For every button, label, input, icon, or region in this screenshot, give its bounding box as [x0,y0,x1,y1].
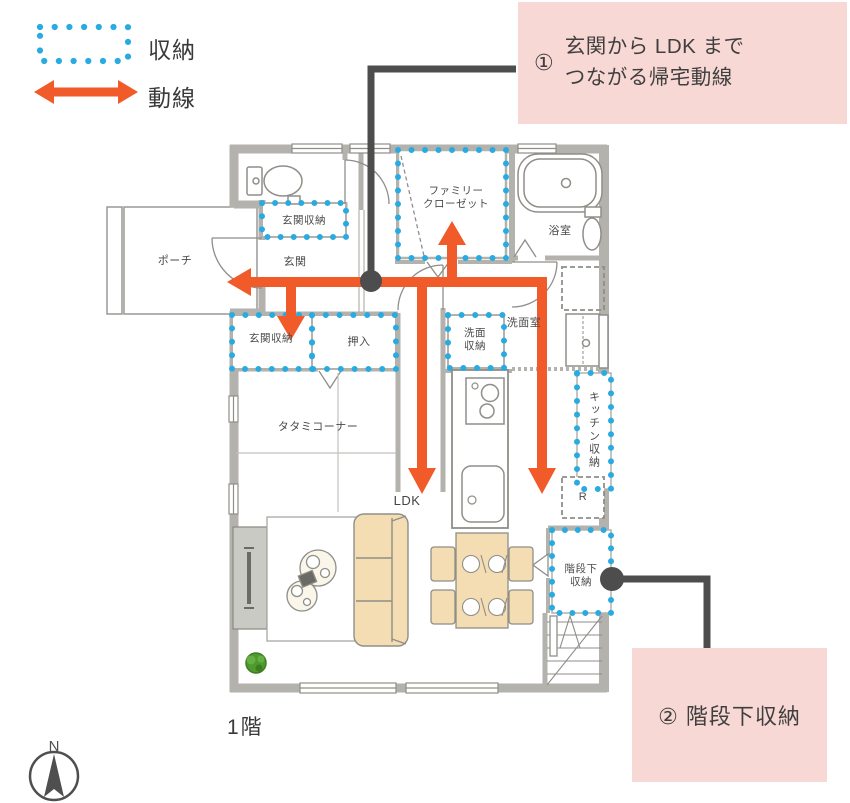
legend-storage-label: 収納 [148,31,196,65]
callout-return-flow: ① 玄関から LDK まで つながる帰宅動線 [518,2,847,124]
tatami-mat-lines [236,373,396,512]
callout-stairs-storage: ② 階段下収納 [632,648,827,782]
room-label-bathroom: 浴室 [549,225,572,239]
stairs [547,616,602,685]
room-label-family-closet: ファミリー クローゼット [423,185,489,211]
room-label-tatami-corner: タタミコーナー [278,421,359,435]
room-label-washroom-storage: 洗面 収納 [464,327,486,353]
callout1-text: 玄関から LDK まで つながる帰宅動線 [565,32,745,94]
washbasin-fixture [566,314,608,368]
junction-dot-callout1 [360,270,382,292]
callout1-number: ① [534,50,554,76]
tv-board [233,527,267,629]
room-label-kitchen-storage: キッチン収納 [588,391,599,469]
dining-set [431,533,533,628]
room-label-fridge: R [579,491,587,505]
sofa [354,514,408,646]
room-label-genkan-storage-top: 玄関収納 [282,214,326,227]
plant-icon [246,653,266,673]
floor-plan-page: 収納 動線 ① 玄関から LDK まで つながる帰宅動線 ② 階段下収納 ポーチ… [0,0,850,803]
room-label-genkan-storage-bottom: 玄関収納 [249,332,293,345]
callout2-text: ② 階段下収納 [658,699,801,731]
room-label-ldk: LDK [394,493,421,509]
room-label-stairs-storage: 階段下 収納 [565,563,598,589]
junction-dot-callout2 [600,567,624,591]
connector-callout2 [612,579,707,650]
flow-arrow-icon [34,80,138,104]
floor-label: 1階 [227,711,264,741]
washing-machine-space [562,267,604,310]
compass-icon [30,752,78,800]
kitchen-island [452,370,508,528]
room-label-genkan: 玄関 [284,256,307,270]
legend-flow-label: 動線 [148,79,196,113]
storage-dotted-outline-icon [40,27,128,61]
toilet-fixture [247,166,302,204]
compass-north-label: N [49,738,60,755]
room-label-porch: ポーチ [158,255,193,269]
room-label-oshiire: 押入 [348,336,371,350]
room-label-washroom: 洗面室 [507,317,542,331]
